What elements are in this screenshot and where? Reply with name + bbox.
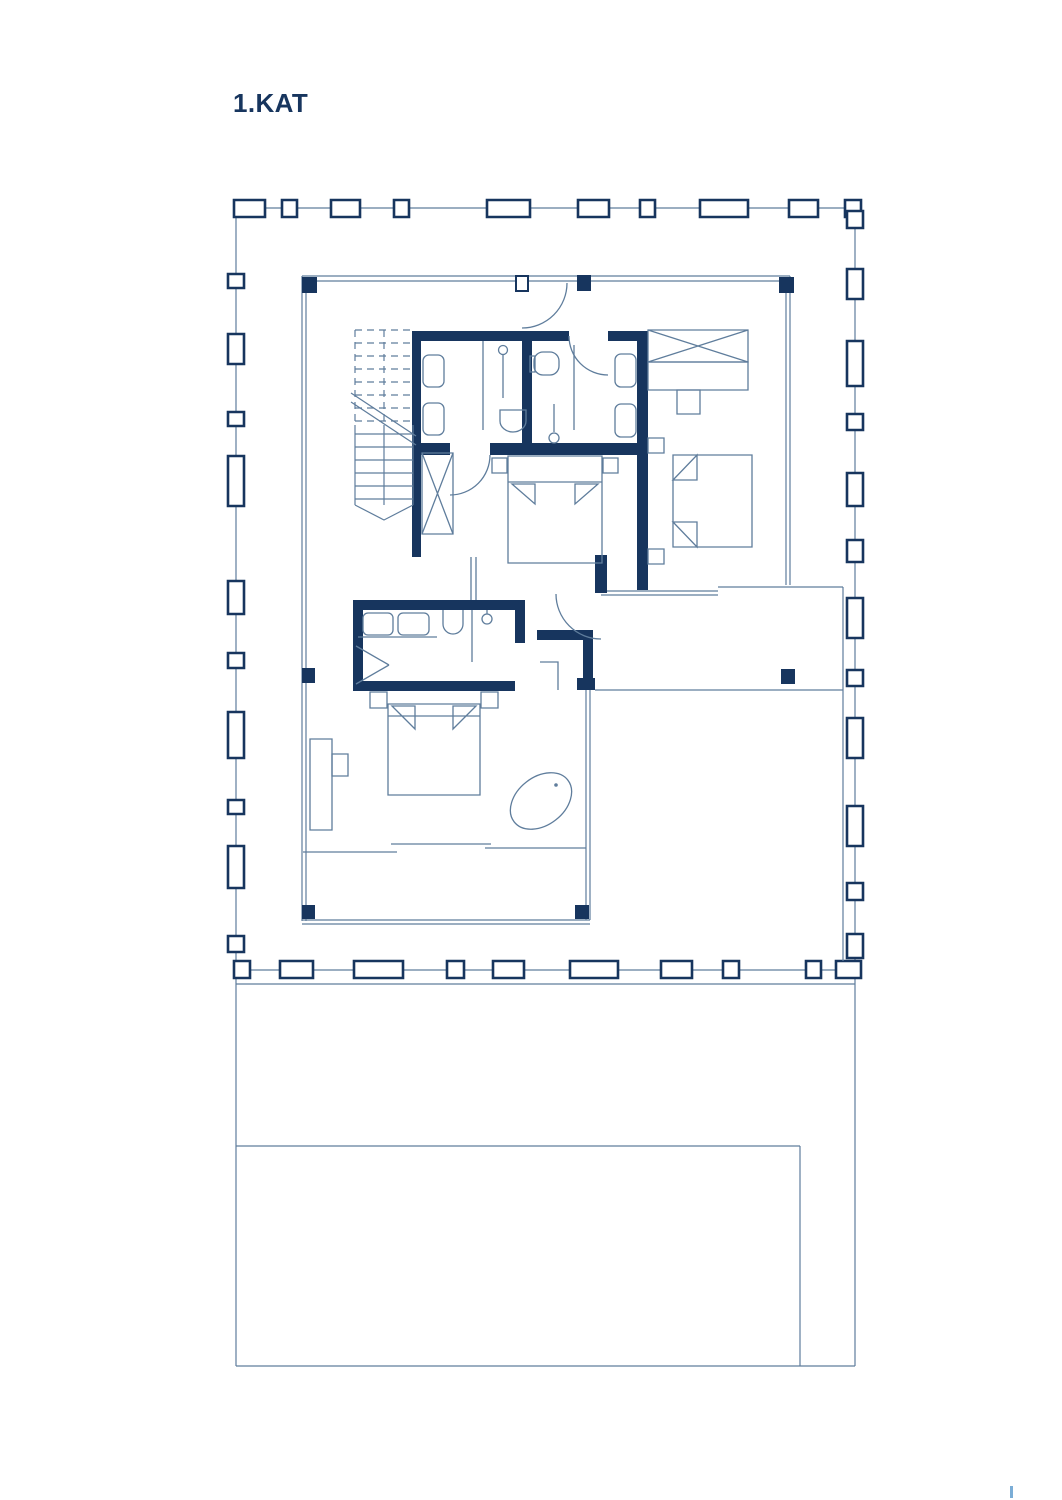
washbasin-icon [363, 613, 393, 635]
master-bathroom [356, 610, 492, 684]
nightstand [492, 458, 507, 473]
pillow [575, 484, 598, 504]
deck-outline [236, 208, 855, 984]
nightstand [370, 692, 387, 708]
bedroom-right [648, 330, 752, 564]
wc-bowl-icon [443, 610, 463, 634]
desk [310, 739, 332, 830]
nightstand [648, 438, 664, 453]
floor-plan-page: 1.KAT [0, 0, 1062, 1500]
pillow [673, 455, 697, 480]
terrace-boundary [302, 276, 843, 961]
lower-court [236, 970, 855, 1366]
tub-drain [554, 783, 558, 787]
nightstand [603, 458, 618, 473]
master-bedroom [310, 692, 583, 841]
bathroom-top-left [423, 341, 508, 435]
pillow [673, 522, 697, 547]
fixture [615, 354, 636, 387]
floor-plan-drawing [0, 0, 1062, 1500]
light-fixture-icon [499, 346, 508, 355]
bathroom-top-middle [500, 345, 636, 443]
nightstand [648, 549, 664, 564]
bedroom-middle [492, 456, 618, 563]
door-frame-return [540, 662, 558, 690]
bathroom-door-arc [569, 336, 608, 375]
pillow [512, 484, 535, 504]
door-jamb [516, 276, 528, 291]
pillow [453, 706, 476, 729]
page-corner-mark [1010, 1486, 1013, 1498]
double-bed [388, 704, 480, 795]
bathtub-icon [499, 761, 582, 841]
columns [302, 275, 795, 919]
pillow [392, 706, 415, 729]
sliding-door-lines [303, 844, 586, 852]
dressing-door-arc [450, 455, 490, 495]
stair-direction-arrow [355, 505, 413, 520]
shower-head-icon [482, 614, 492, 624]
double-bed [673, 455, 752, 547]
shower-head-icon [549, 433, 559, 443]
cabinet-fixture [423, 355, 444, 387]
fixture [615, 404, 636, 437]
desk-chair [332, 754, 348, 776]
nightstand [481, 692, 498, 708]
cabinet-fixture [423, 403, 444, 435]
toilet-icon [534, 352, 559, 375]
hall-railing [471, 557, 476, 600]
double-bed [508, 456, 602, 563]
staircase [351, 330, 416, 520]
washbasin-icon [398, 613, 429, 635]
elevator-shaft [422, 453, 453, 534]
